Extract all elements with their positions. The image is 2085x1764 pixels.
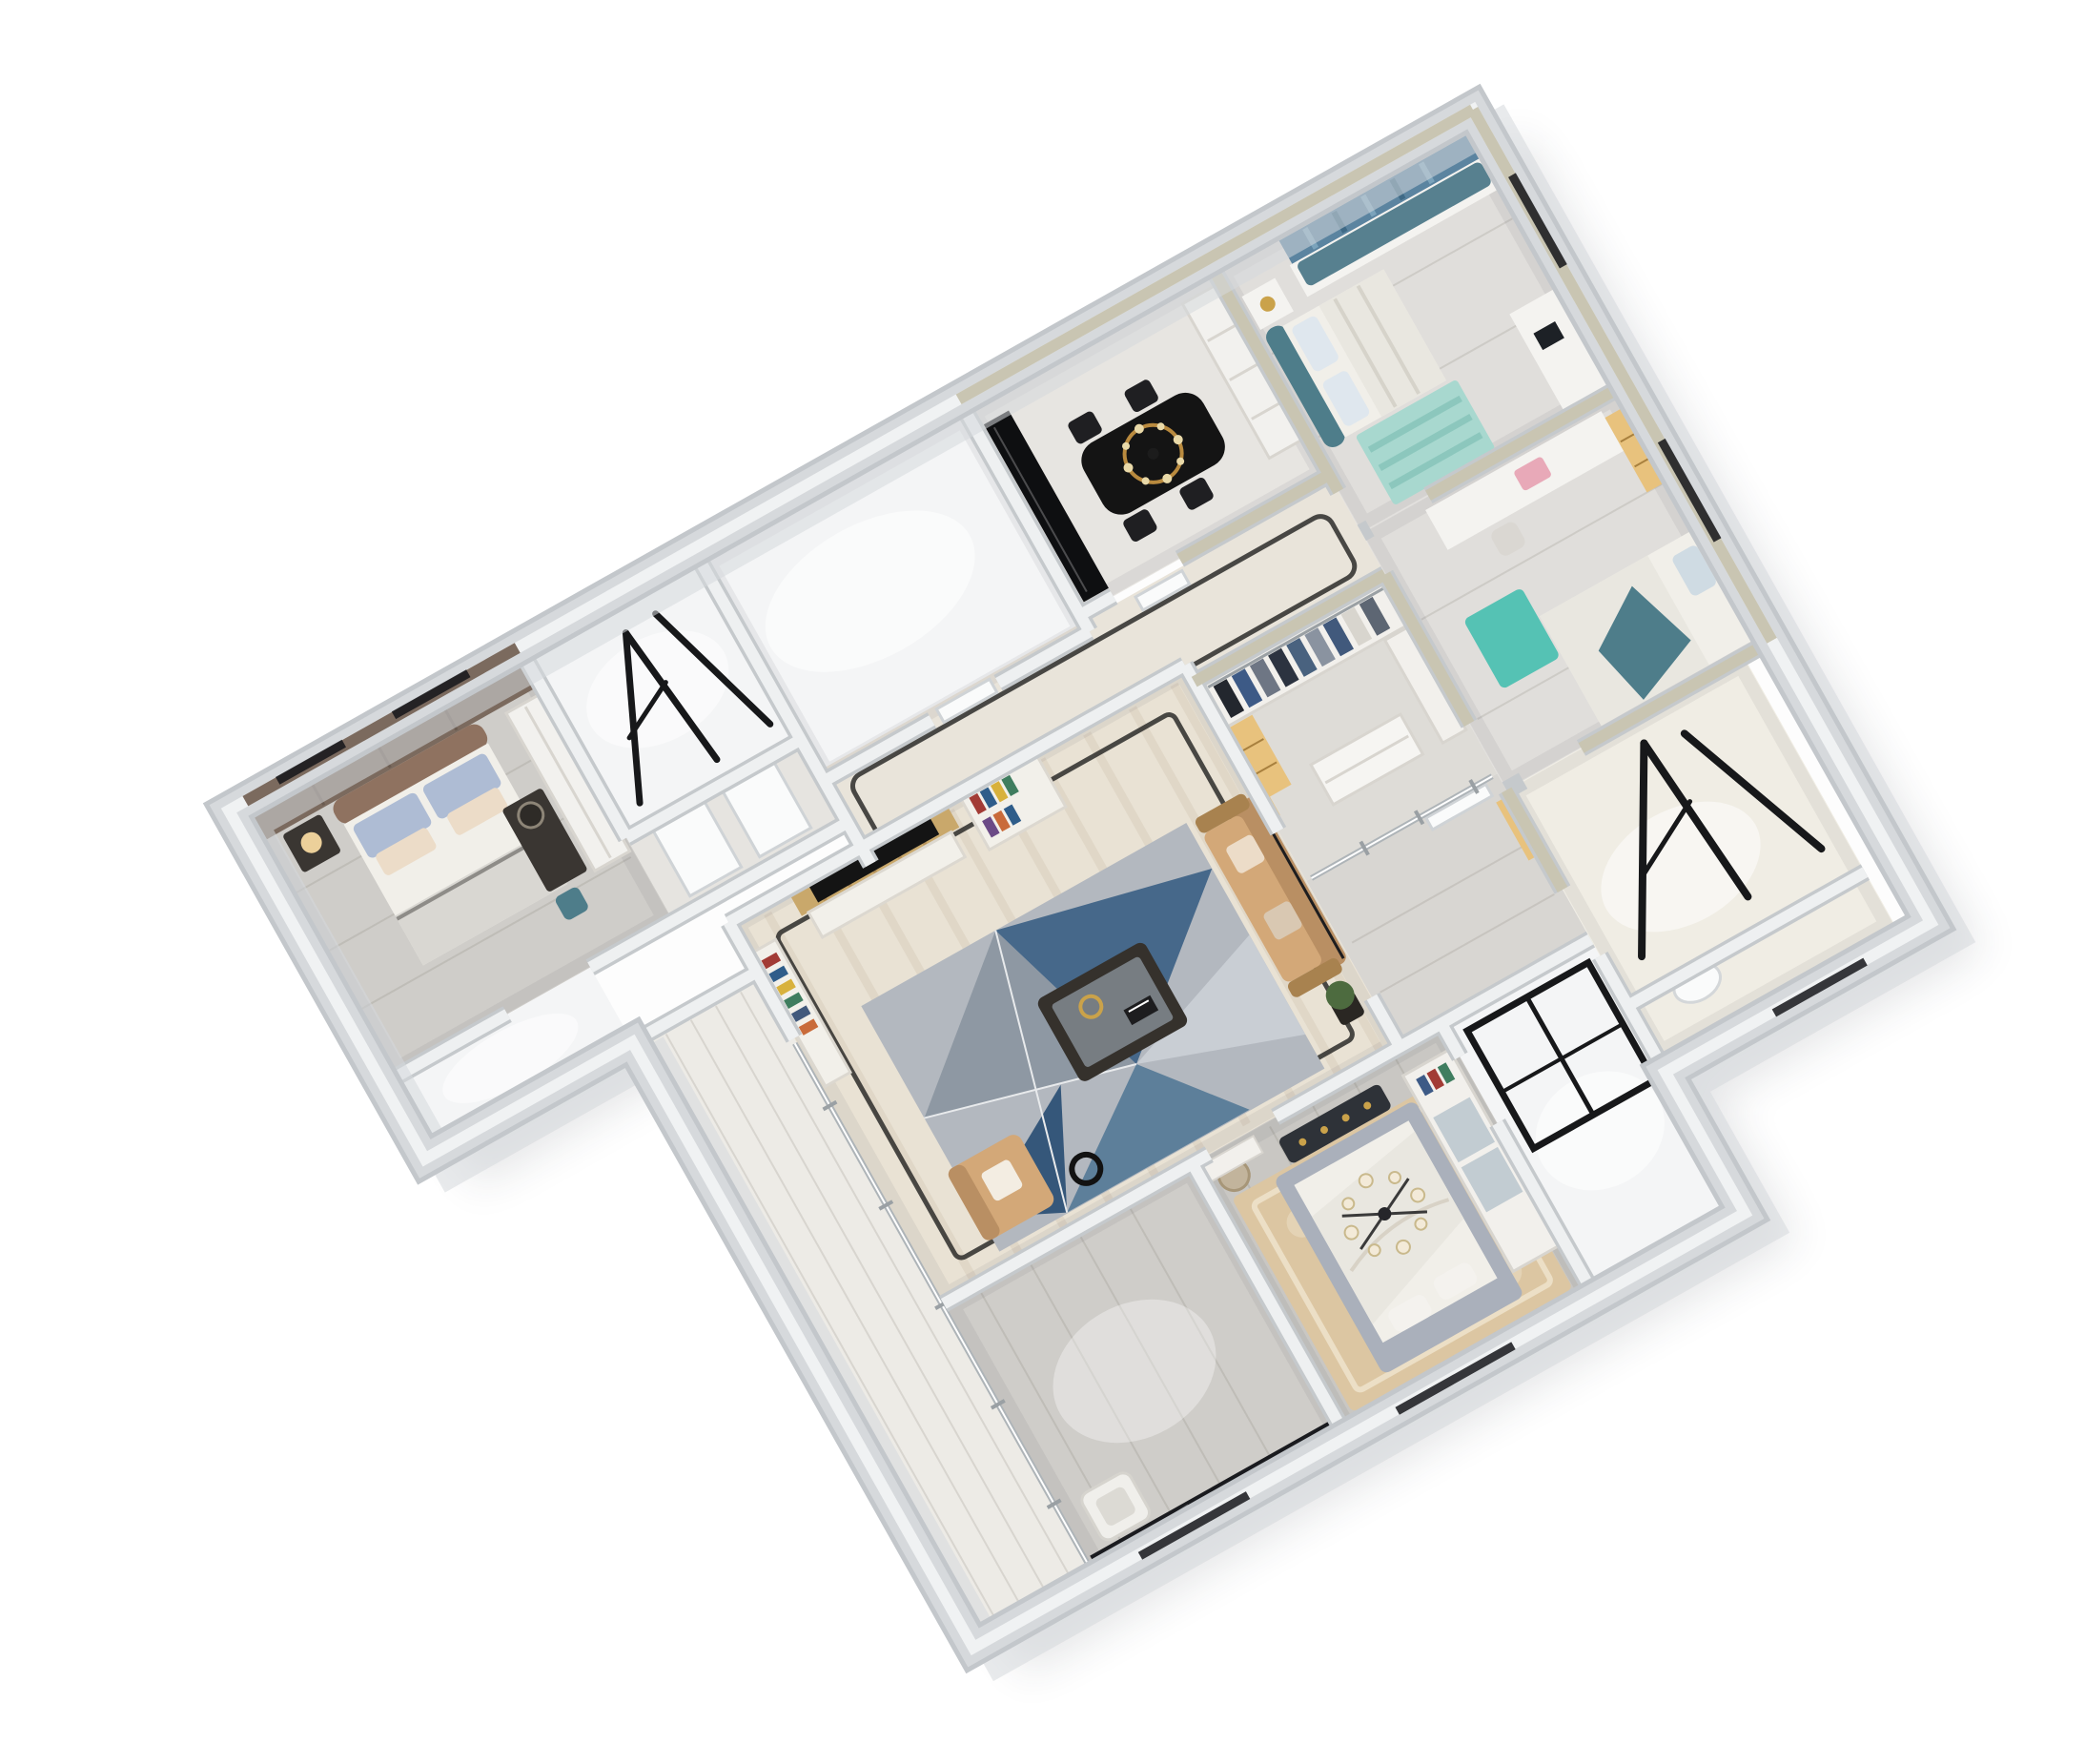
- wall-under: [1361, 528, 1370, 533]
- apartment-axonometric-svg: [0, 0, 2085, 1764]
- floorplan-render-canvas: [0, 0, 2085, 1764]
